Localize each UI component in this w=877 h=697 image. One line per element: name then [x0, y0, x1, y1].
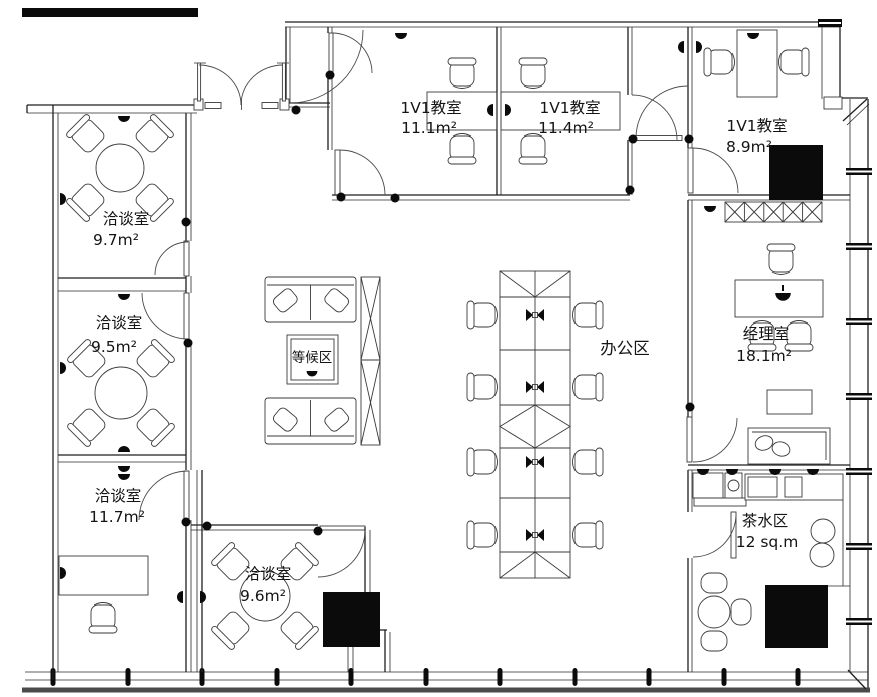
- wall-light-icon: [60, 193, 66, 205]
- table: [737, 30, 777, 97]
- door-leaf: [320, 526, 365, 530]
- chair: [573, 373, 604, 401]
- wall-light-icon: [200, 591, 206, 603]
- ceiling-light-icon: [118, 116, 130, 122]
- chair: [210, 608, 252, 650]
- room-meeting-3: [59, 556, 148, 633]
- door-leaf: [184, 471, 189, 520]
- desk: [59, 556, 148, 595]
- chair: [89, 603, 117, 634]
- round-table: [95, 367, 147, 419]
- door-arc: [139, 471, 188, 520]
- room-label-office: 办公区: [600, 339, 650, 358]
- chair: [519, 58, 547, 89]
- room-label-classroom-2: 1V1教室: [539, 99, 600, 117]
- floor-plan-page: 洽谈室 9.7m² 洽谈室 9.5m² 洽谈室 11.7m² 洽谈室 9.6m²…: [0, 0, 877, 697]
- room-area-meeting-3: 11.7m²: [89, 508, 145, 526]
- room-label-meeting-3: 洽谈室: [95, 487, 142, 505]
- wall-light-icon: [487, 104, 493, 116]
- column: [769, 145, 823, 200]
- door-arc: [318, 530, 365, 577]
- floor-plan: 洽谈室 9.7m² 洽谈室 9.5m² 洽谈室 11.7m² 洽谈室 9.6m²…: [0, 0, 877, 697]
- door-leaf: [184, 241, 189, 276]
- chair: [467, 521, 498, 549]
- counter: [693, 473, 843, 506]
- room-area-classroom-1: 11.1m²: [401, 119, 457, 137]
- chair: [704, 48, 735, 76]
- room-classroom-3: [704, 30, 809, 97]
- door-arc: [155, 242, 188, 275]
- title-block-bar: [22, 8, 198, 17]
- ceiling-light-icon: [118, 466, 130, 472]
- sofa: [265, 398, 356, 444]
- door-arc: [142, 293, 188, 339]
- room-label-meeting-4: 洽谈室: [245, 565, 292, 583]
- ceiling-light-icon: [395, 33, 407, 39]
- room-area-meeting-4: 9.6m²: [240, 587, 286, 605]
- chair: [573, 448, 604, 476]
- door-arc: [693, 514, 736, 557]
- door-leaf: [687, 417, 692, 462]
- room-label-waiting: 等候区: [292, 349, 333, 366]
- chair: [467, 373, 498, 401]
- chair: [767, 244, 795, 275]
- wall-light-icon: [177, 591, 183, 603]
- chair: [701, 573, 727, 593]
- chair: [467, 301, 498, 329]
- bookshelf: [361, 277, 380, 445]
- chair: [701, 631, 727, 651]
- vestibule-door-arc: [290, 30, 363, 103]
- columns: [323, 145, 828, 672]
- room-label-tea: 茶水区: [742, 512, 789, 530]
- wall-light-icon: [678, 41, 684, 53]
- room-area-classroom-2: 11.4m²: [538, 119, 594, 137]
- ceiling-light-icon: [118, 294, 130, 300]
- ceiling-light-icon: [118, 446, 130, 452]
- room-meeting-1: [65, 113, 174, 222]
- door-leaf: [634, 136, 682, 141]
- room-area-classroom-3: 8.9m²: [726, 138, 772, 156]
- hinge-dots: [182, 71, 695, 536]
- chair: [467, 448, 498, 476]
- door-arc: [636, 86, 688, 138]
- room-label-manager: 经理室: [743, 325, 790, 343]
- tea-table-set: [698, 573, 751, 651]
- wall-light-icon: [696, 41, 702, 53]
- room-area-tea: 12 sq.m: [736, 533, 799, 551]
- round-table: [698, 596, 730, 628]
- room-area-meeting-1: 9.7m²: [93, 231, 139, 249]
- door-arc: [693, 418, 737, 462]
- chair: [731, 599, 751, 625]
- chair: [573, 301, 604, 329]
- chair: [132, 113, 174, 155]
- door-leaf: [688, 148, 693, 193]
- chair: [448, 58, 476, 89]
- room-label-meeting-2: 洽谈室: [96, 314, 143, 332]
- room-area-manager: 18.1m²: [736, 347, 792, 365]
- chair: [277, 608, 319, 650]
- shelf-x-hatch: [725, 202, 822, 222]
- door-arc: [632, 95, 677, 140]
- chair: [519, 134, 547, 165]
- chair: [573, 521, 604, 549]
- stool: [810, 543, 834, 567]
- chair: [65, 180, 107, 222]
- room-label-meeting-1: 洽谈室: [103, 210, 150, 228]
- stool: [811, 519, 835, 543]
- door-leaf: [184, 293, 189, 339]
- door-arc: [340, 150, 385, 195]
- wall-light-icon: [505, 104, 511, 116]
- chair: [779, 48, 810, 76]
- ceiling-light-icon: [118, 474, 130, 480]
- door-leaf: [329, 33, 333, 73]
- sofa: [265, 277, 356, 322]
- daybed: [748, 428, 830, 464]
- chair: [448, 134, 476, 165]
- office-desk-bank: [467, 271, 603, 578]
- room-label-classroom-3: 1V1教室: [726, 117, 787, 135]
- room-area-meeting-2: 9.5m²: [91, 338, 137, 356]
- round-table: [96, 144, 144, 192]
- wall-light-icon: [60, 362, 66, 374]
- ceiling-light-icon: [704, 206, 716, 212]
- room-label-classroom-1: 1V1教室: [400, 99, 461, 117]
- column: [323, 592, 380, 672]
- column: [765, 585, 828, 648]
- chair: [65, 113, 107, 155]
- side-table: [767, 390, 812, 414]
- window-sill: [824, 97, 842, 109]
- door-leaf: [335, 150, 340, 195]
- sink: [725, 473, 742, 498]
- door-arc: [332, 33, 372, 73]
- entrance-double-door: [194, 63, 289, 110]
